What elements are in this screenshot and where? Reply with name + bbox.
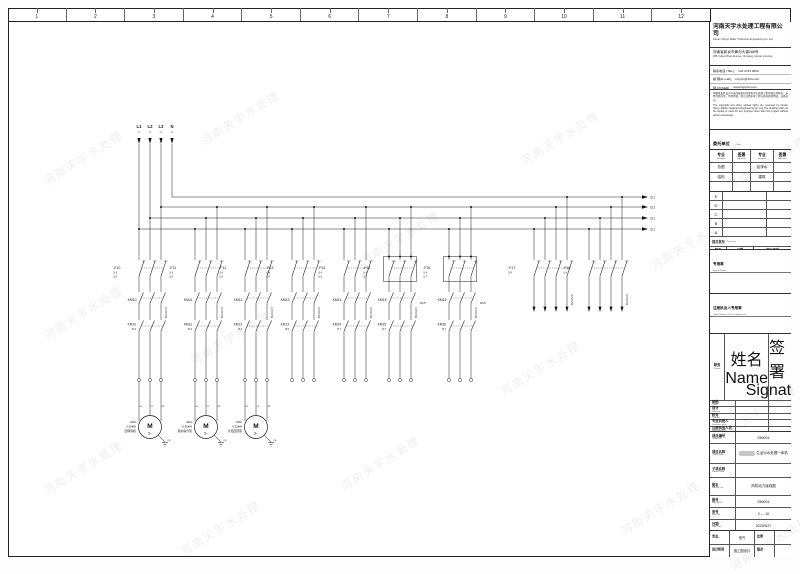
aux-device-label: N16 xyxy=(480,301,486,305)
motor-terminal-label: U1 xyxy=(140,406,144,408)
value-cell xyxy=(736,464,791,477)
project-split-rows: 专业Discipline电气比例Scale设计阶段Design Phase施工图… xyxy=(710,531,791,557)
row-label: 项目名称Project Name xyxy=(710,444,736,463)
cell xyxy=(723,219,767,227)
junction-dot xyxy=(388,228,390,230)
name-cell xyxy=(736,401,769,406)
header-en: Discipline xyxy=(717,158,726,160)
contactor-ref-label: /5.5 xyxy=(285,328,290,331)
spare-arrowhead xyxy=(544,307,547,313)
phase-label: N xyxy=(170,124,173,129)
junction-dot xyxy=(410,256,412,258)
value-cell: 2023/5/27 xyxy=(736,520,791,531)
terminal-circle xyxy=(398,378,401,381)
motor-id-label: -M10 xyxy=(129,420,136,424)
header-en: Signature xyxy=(746,382,791,400)
label-en: Issue Date xyxy=(712,526,735,528)
terminal-circle xyxy=(353,378,356,381)
junction-dot xyxy=(555,206,557,208)
spare-arrowhead xyxy=(599,307,602,313)
junction-dot xyxy=(610,206,612,208)
breaker-blade xyxy=(389,261,394,276)
pe-wire xyxy=(158,435,165,442)
special-stamp-label: 专用章 Special Stamp xyxy=(710,250,791,273)
junction-dot xyxy=(410,206,412,208)
feeder-label: -F15 xyxy=(363,266,370,270)
cell xyxy=(767,201,791,209)
junction-dot xyxy=(459,256,461,258)
junction-dot xyxy=(470,256,472,258)
motor-power-label: 0.25kW xyxy=(126,425,136,429)
feeder-label: -F14 xyxy=(318,266,325,270)
breaker-blade xyxy=(589,261,594,276)
phase-ref-label: 1.1 xyxy=(170,132,174,134)
client-label-cn: 委托单位 xyxy=(713,141,730,146)
stamp-label-en: Special Stamp Of Person Registered xyxy=(713,314,788,316)
label-en: Project Name xyxy=(712,454,735,456)
contactor-label: KM12 xyxy=(234,298,243,302)
contactor-contact xyxy=(206,293,211,304)
terminal-circle xyxy=(254,378,257,381)
junction-dot xyxy=(621,196,623,198)
bus-ref-label: /3.1 xyxy=(650,205,656,209)
contactor-contact xyxy=(195,293,200,304)
company-address: 河南省新乡市黄河大道288号 288 Yellow River Avenue, … xyxy=(710,48,791,66)
cell xyxy=(774,163,791,172)
motor-terminal-label: U1 xyxy=(196,406,200,408)
label-en: Subitem Name xyxy=(712,471,735,473)
client-label-en: Client xyxy=(735,144,741,146)
motor-terminal-label: V1 xyxy=(257,406,260,408)
label-en: Scale xyxy=(757,538,774,540)
cell xyxy=(767,192,791,200)
breaker-blade xyxy=(449,261,454,276)
contactor-contact xyxy=(303,293,308,304)
feeder-ref-label: /1.4 xyxy=(169,272,174,275)
pe-wire xyxy=(214,435,221,442)
revision-row: C xyxy=(710,210,791,219)
stamp-label-cn: 专用章 xyxy=(713,262,724,266)
cell xyxy=(723,201,767,209)
table-row: 张号Sheet No.2 — 10 xyxy=(710,508,791,520)
disclaimer-en: The copyright and other related rights a… xyxy=(713,104,788,117)
contactor-contact xyxy=(344,293,349,304)
motor-name-label: 潜水提升泵 xyxy=(178,428,193,433)
pe-wire xyxy=(264,435,271,442)
contactor-contact xyxy=(303,321,308,332)
redacted-text xyxy=(739,451,755,456)
contactor-contact xyxy=(355,321,360,332)
feeder-ref-label: /1.6 xyxy=(318,276,323,279)
motor-m-glyph: M xyxy=(253,423,258,430)
junction-dot xyxy=(255,217,257,219)
special-stamp-box: 专用章 Special Stamp xyxy=(710,250,791,294)
cell xyxy=(751,182,774,191)
phase-ref-label: 1.1 xyxy=(137,132,141,134)
value-cell: 电气 xyxy=(730,531,755,544)
contactor-contact xyxy=(460,321,465,332)
contactor-contact xyxy=(256,293,261,304)
junction-dot xyxy=(302,217,304,219)
junction-dot xyxy=(244,228,246,230)
contact-value: xxtyscl@163.com xyxy=(735,77,759,81)
phase-label: L1 xyxy=(137,124,143,129)
contactor-contact xyxy=(411,321,416,332)
signature-cell xyxy=(769,414,791,419)
feeder-ref-label: /1.6 xyxy=(266,276,271,279)
row-label: 图号Drawing No. xyxy=(710,496,736,507)
project-info-table: 项目编号Project No.S60001项目名称Project Name生活污… xyxy=(710,432,791,531)
contactor-contact xyxy=(150,321,155,332)
terminal-circle xyxy=(312,378,315,381)
contactor-ref-label: /5.7 xyxy=(442,328,447,331)
breaker-blade xyxy=(161,261,166,276)
cell: 给排水 xyxy=(751,163,774,172)
terminal-circle xyxy=(159,378,162,381)
contactor-label: KM10 xyxy=(128,323,137,327)
row-label: 日期Issue Date xyxy=(710,520,736,531)
revision-row: E xyxy=(710,192,791,201)
cell: 总图 xyxy=(710,163,733,172)
phase-label: L3 xyxy=(159,124,165,129)
breaker-blade xyxy=(245,261,250,276)
junction-dot xyxy=(399,217,401,219)
contact-label: 邮 箱(E-mail)： xyxy=(713,76,734,81)
pe-label: PE xyxy=(224,440,227,442)
spare-arrowhead xyxy=(555,307,558,313)
cell xyxy=(767,228,791,236)
feeder-label: -F16 xyxy=(423,266,430,270)
cable-label: BV-3×2.5 xyxy=(474,307,478,318)
row-label: 设计阶段Design Phase xyxy=(710,545,730,558)
cell: 结构 xyxy=(710,173,733,182)
contactor-contact xyxy=(366,293,371,304)
contactor-contact xyxy=(195,321,200,332)
feeder-ref-label: /1.4 xyxy=(266,272,271,275)
schematic-canvas: L11.1/3.1L21.1/3.1L31.1/3.1N1.1/3.1-F10/… xyxy=(0,0,800,565)
row-label: 比例Scale xyxy=(755,531,775,544)
contactor-contact xyxy=(400,321,405,332)
terminal-circle xyxy=(204,378,207,381)
cable-label: BV-3×1.5 xyxy=(164,307,168,318)
cable-label: BV-3×2.5 xyxy=(369,307,373,318)
aux-device-label: N15 xyxy=(420,301,426,305)
contactor-contact xyxy=(389,293,394,304)
terminal-circle xyxy=(243,378,246,381)
contactor-contact xyxy=(161,321,166,332)
feeder-ref-label: /1.7 xyxy=(363,276,368,279)
row-label: 专业负责人Discipline Leader xyxy=(710,420,736,425)
feeder-label: -F17 xyxy=(508,266,515,270)
contactor-contact xyxy=(314,321,319,332)
feeder-label: -F12 xyxy=(219,266,226,270)
contactor-contact xyxy=(314,293,319,304)
label-en: Project No. xyxy=(712,438,735,440)
contactor-contact xyxy=(449,293,454,304)
label-en: Sheet No. xyxy=(712,514,735,516)
junction-dot xyxy=(205,217,207,219)
row-label: 图名Drawing Title xyxy=(710,478,736,495)
spare-arrowhead xyxy=(588,307,591,313)
motor-terminal-label: W1 xyxy=(267,406,271,408)
breaker-blade xyxy=(611,261,616,276)
phase-ref-label: 1.1 xyxy=(159,132,163,134)
terminal-circle xyxy=(447,378,450,381)
feeder-ref-label: /1.6 xyxy=(169,276,174,279)
revision-table: EDCBA首次发布First Issue版次Revised日期Issue Dat… xyxy=(710,192,791,250)
contact-value: www.hgtyscl.com xyxy=(733,85,757,89)
contactor-label: KM10 xyxy=(128,298,137,302)
junction-dot xyxy=(354,217,356,219)
header-cell: 专业Discipline xyxy=(710,150,733,162)
breaker-blade xyxy=(139,261,144,276)
table-row: 设计阶段Design Phase施工图设计版次Edition xyxy=(710,545,791,558)
breaker-blade xyxy=(556,261,561,276)
contactor-ref-label: /5.4 xyxy=(238,328,243,331)
motor-power-label: 0.25kW xyxy=(232,425,242,429)
junction-dot xyxy=(533,228,535,230)
motor-id-label: -M11 xyxy=(186,420,193,424)
row-label: 版次Edition xyxy=(755,545,775,558)
cable-label: BV-3×2.5 xyxy=(317,307,321,318)
revision-letter: A xyxy=(710,228,723,236)
terminal-circle xyxy=(469,378,472,381)
motor-phase-glyph: 3~ xyxy=(254,431,259,436)
header-cell: 专业Discipline xyxy=(751,150,774,162)
value-cell xyxy=(775,531,791,544)
cable-label: BV-3×1.5 xyxy=(270,307,274,318)
terminal-circle xyxy=(387,378,390,381)
value-text: 生活污水处理一体机 xyxy=(756,451,788,456)
junction-dot xyxy=(448,256,450,258)
terminal-circle xyxy=(409,378,412,381)
feeder-ref-label: /1.4 xyxy=(423,272,428,275)
junction-dot xyxy=(313,206,315,208)
contactor-label: KM15 xyxy=(378,323,387,327)
down-arrowhead xyxy=(170,138,173,144)
header-cn: 签署 xyxy=(769,334,791,382)
contactor-contact xyxy=(449,321,454,332)
value-text: 风机动力接线图 xyxy=(751,484,776,489)
value-cell xyxy=(775,545,791,558)
issue-en: First Issue xyxy=(727,241,736,243)
disclaimer: 本图纸及其设计内容的版权归河南天宇水处理工程有限公司所有，未经书面许可，不得复制… xyxy=(710,90,791,130)
breaker-blade xyxy=(303,261,308,276)
junction-dot xyxy=(343,228,345,230)
terminal-circle xyxy=(290,378,293,381)
value-text: S60001 xyxy=(757,500,769,504)
registered-stamp-label: 注册执业人专用章 Special Stamp Of Person Registe… xyxy=(710,294,791,317)
personnel-table: 职务Position姓名Name签署Signature制图Drawn设计Desi… xyxy=(710,334,791,432)
table-row: 专业Discipline电气比例Scale xyxy=(710,531,791,545)
revision-row: A xyxy=(710,228,791,237)
phase-ref-label: 1.1 xyxy=(148,132,152,134)
contactor-contact xyxy=(139,293,144,304)
contact-row: 联系电话 (TEL)：133 3733 0666 xyxy=(710,67,791,75)
motor-power-label: 0.55kW xyxy=(182,425,192,429)
terminal-circle xyxy=(364,378,367,381)
contactor-contact xyxy=(355,293,360,304)
table-row: 日期Issue Date2023/5/27 xyxy=(710,520,791,531)
address-en: 288 Yellow River Avenue, Xinxiang, Henan… xyxy=(713,55,788,58)
value-text: 2 — 10 xyxy=(758,512,769,516)
feeder-ref-label: /1.4 xyxy=(563,272,568,275)
contactor-label: KM13 xyxy=(281,323,290,327)
contact-value: 133 3733 0666 xyxy=(738,69,759,73)
contactor-ref-label: /5.4 xyxy=(132,328,137,331)
feeder-label: -F18 xyxy=(563,266,570,270)
cell xyxy=(733,182,751,191)
signature-cell xyxy=(769,401,791,406)
terminal-circle xyxy=(137,378,140,381)
junction-dot xyxy=(448,228,450,230)
spare-arrowhead xyxy=(621,307,624,313)
breaker-blade xyxy=(150,261,155,276)
revision-letter: E xyxy=(710,192,723,200)
contact-label: 网 址(WEB)： xyxy=(713,85,732,90)
client-block: 委托单位 Client 有限公司 xyxy=(710,130,791,150)
terminal-circle xyxy=(301,378,304,381)
value-text: 2023/5/27 xyxy=(756,524,772,528)
signature-cell xyxy=(769,420,791,425)
company-name: 河南天宇水处理工程有限公司 xyxy=(713,24,788,37)
junction-dot xyxy=(388,256,390,258)
feeder-label: -F11 xyxy=(169,266,176,270)
company-header: 河南天宇水处理工程有限公司 Henan Tianyu Water Treatme… xyxy=(710,22,791,48)
motor-id-label: -M12 xyxy=(235,420,242,424)
motor-name-label: 污泥回流泵 xyxy=(228,428,243,433)
stamp-label-cn: 注册执业人专用章 xyxy=(713,306,742,310)
cell xyxy=(774,182,791,191)
contactor-label: KM14 xyxy=(333,298,342,302)
header-en: Signature xyxy=(737,158,746,160)
contactor-contact xyxy=(217,321,222,332)
contactor-contact xyxy=(460,293,465,304)
contactor-contact xyxy=(267,321,272,332)
contactor-label: KM12 xyxy=(234,323,243,327)
contact-row: 邮 箱(E-mail)：xxtyscl@163.com xyxy=(710,75,791,83)
breaker-blade xyxy=(411,261,416,276)
contactor-ref-label: /5.7 xyxy=(337,328,342,331)
name-cell xyxy=(736,420,769,425)
value-cell: 风机动力接线图 xyxy=(736,478,791,495)
down-arrowhead xyxy=(137,138,140,144)
junction-dot xyxy=(399,256,401,258)
cell xyxy=(774,173,791,182)
table-row: 项目编号Project No.S60001 xyxy=(710,432,791,444)
value-cell: 生活污水处理一体机 xyxy=(736,444,791,463)
bus-arrowhead xyxy=(642,195,648,199)
bus-arrowhead xyxy=(642,216,648,220)
header-cell: 签署Signature xyxy=(769,334,791,400)
client-label: 委托单位 Client xyxy=(713,132,788,150)
contactor-ref-label: /5.4 xyxy=(188,328,193,331)
label-en: Drawing Title xyxy=(712,487,735,489)
value-text: S60001 xyxy=(757,436,769,440)
feeder-ref-label: /1.4 xyxy=(508,272,513,275)
cell xyxy=(733,173,751,182)
label-en: Edition xyxy=(757,551,774,553)
revision-row: D xyxy=(710,201,791,210)
contactor-label: KM11 xyxy=(184,298,193,302)
feeder-ref-label: /1.4 xyxy=(363,272,368,275)
header-cell: 签署Signature xyxy=(774,150,791,162)
contactor-contact xyxy=(139,321,144,332)
revision-letter: C xyxy=(710,210,723,218)
cable-label: BV-3×1.5 xyxy=(220,307,224,318)
cell xyxy=(710,182,733,191)
contactor-contact xyxy=(217,293,222,304)
contactor-contact xyxy=(471,321,476,332)
breaker-blade xyxy=(622,261,627,276)
phase-label: L2 xyxy=(148,124,154,129)
contactor-label: KM14 xyxy=(333,323,342,327)
contactor-contact xyxy=(292,321,297,332)
table-row: 结构建筑 xyxy=(710,173,791,183)
label-en: Discipline xyxy=(712,538,729,540)
breaker-blade xyxy=(400,261,405,276)
junction-dot xyxy=(459,217,461,219)
spare-arrowhead xyxy=(533,307,536,313)
motor-phase-glyph: 3~ xyxy=(148,431,153,436)
terminal-circle xyxy=(458,378,461,381)
motor-terminal-label: W1 xyxy=(217,406,221,408)
motor-phase-glyph: 3~ xyxy=(204,431,209,436)
bus-ref-label: /3.1 xyxy=(650,216,656,220)
row-label: 张号Sheet No. xyxy=(710,508,736,519)
value-cell: S60001 xyxy=(736,432,791,443)
breaker-blade xyxy=(292,261,297,276)
revision-letter: B xyxy=(710,219,723,227)
issue-row: 首次发布First Issue xyxy=(710,237,791,247)
junction-dot xyxy=(365,206,367,208)
motor-terminal-label: V1 xyxy=(151,406,154,408)
label-en: Drawing No. xyxy=(712,502,735,504)
breaker-blade xyxy=(355,261,360,276)
table-row: 图号Drawing No.S60001 xyxy=(710,496,791,508)
cell xyxy=(733,163,751,172)
revision-row: B xyxy=(710,219,791,228)
name-cell xyxy=(736,407,769,412)
table-header-row: 职务Position姓名Name签署Signature xyxy=(710,334,791,401)
junction-dot xyxy=(566,196,568,198)
breaker-blade xyxy=(206,261,211,276)
contactor-contact xyxy=(400,293,405,304)
issue-cn: 首次发布 xyxy=(712,239,725,244)
cable-label: BV-3×2.5 xyxy=(414,307,418,318)
table-header-row: 专业Discipline签署Signature专业Discipline签署Sig… xyxy=(710,150,791,163)
breaker-blade xyxy=(195,261,200,276)
row-label: 子项名称Subitem Name xyxy=(710,464,736,477)
pe-label: PE xyxy=(274,440,277,442)
contactor-contact xyxy=(344,321,349,332)
table-row: 子项名称Subitem Name xyxy=(710,464,791,478)
feeder-ref-label: /1.6 xyxy=(113,276,118,279)
junction-dot xyxy=(544,217,546,219)
spare-arrowhead xyxy=(610,307,613,313)
contactor-contact xyxy=(206,321,211,332)
contactor-label: KM16 xyxy=(438,323,447,327)
feeder-label: -F13 xyxy=(266,266,273,270)
table-row: 图名Drawing Title风机动力接线图 xyxy=(710,478,791,496)
breaker-blade xyxy=(344,261,349,276)
breaker-blade xyxy=(460,261,465,276)
header-en: Discipline xyxy=(758,158,767,160)
terminal-circle xyxy=(193,378,196,381)
feeder-ref-label: /1.7 xyxy=(423,276,428,279)
breaker-blade xyxy=(256,261,261,276)
contactor-contact xyxy=(150,293,155,304)
